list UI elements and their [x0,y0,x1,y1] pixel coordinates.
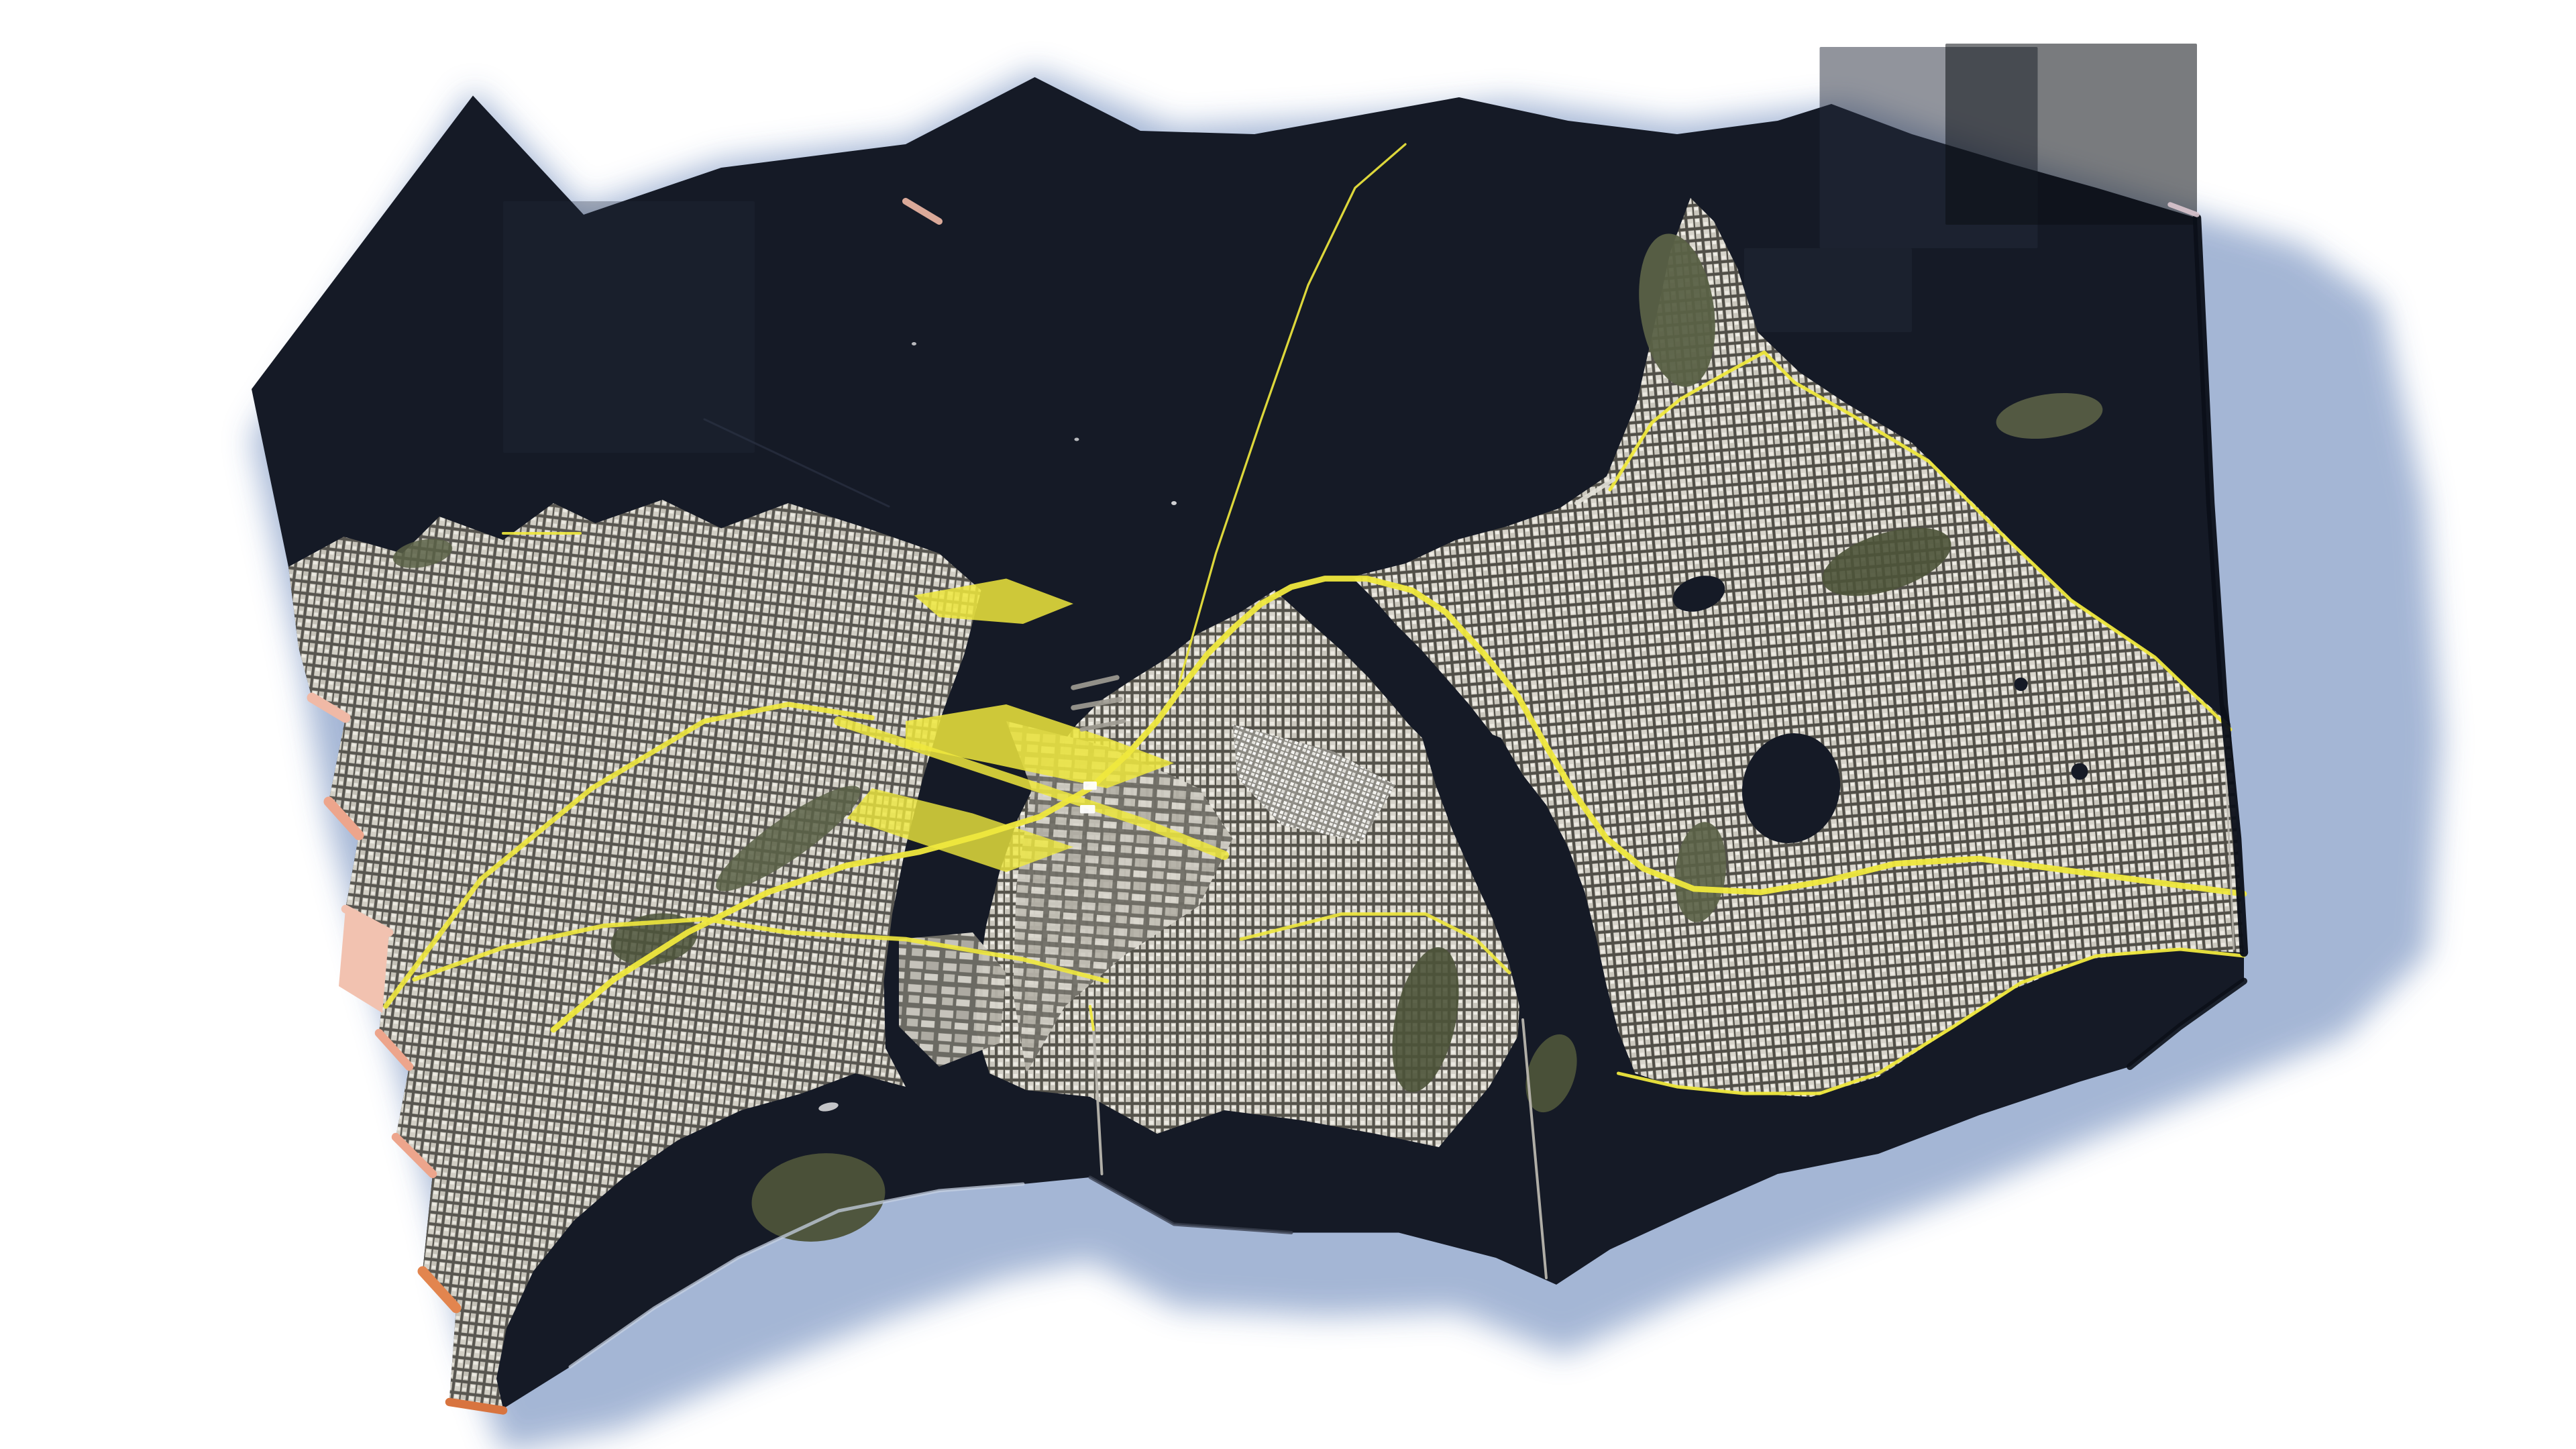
stadium-2 [1080,805,1095,814]
boat-dot-3 [912,342,916,345]
aerial-collage-map [0,0,2576,1449]
map-layers [252,44,2442,1449]
water-seam-patch-3 [1744,248,1912,332]
stadium-1 [1083,782,1097,790]
page-background [0,0,2576,1449]
pond-1 [2072,763,2088,780]
water-seam-patch-4 [503,201,755,453]
water-seam-patch-2 [1945,44,2197,225]
boat-dot-1 [1171,501,1177,505]
boat-dot-2 [1075,438,1079,441]
pond-2 [2015,678,2028,691]
